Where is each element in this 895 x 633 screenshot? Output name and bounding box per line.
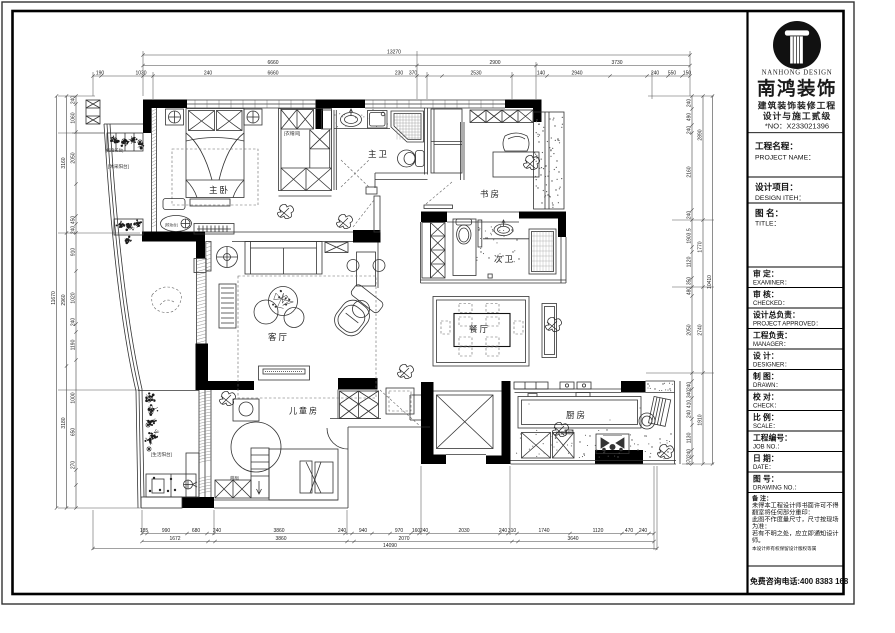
svg-text:日 期：: 日 期： [753,453,779,463]
svg-text:6660: 6660 [267,70,278,76]
svg-text:1190: 1190 [71,339,77,350]
svg-text:2030: 2030 [458,528,469,534]
svg-text:书房: 书房 [480,189,501,199]
svg-text:940: 940 [359,528,368,534]
svg-text:餐厅: 餐厅 [469,324,490,334]
svg-text:2530: 2530 [470,70,481,76]
svg-text:免费咨询电话:400 8383 168: 免费咨询电话:400 8383 168 [750,576,849,586]
svg-text:11670: 11670 [51,291,57,305]
svg-text:2940: 2940 [571,70,582,76]
svg-text:工程编号：: 工程编号： [753,433,792,443]
svg-text:3160: 3160 [61,157,67,168]
svg-text:DATE：: DATE： [753,465,775,471]
svg-text:*NO：X233021396: *NO：X233021396 [765,122,829,131]
svg-text:1120: 1120 [593,528,604,534]
svg-text:SCALE：: SCALE： [753,424,779,430]
svg-text:NANHONG DESIGN: NANHONG DESIGN [762,70,833,77]
svg-text:14090: 14090 [383,543,397,549]
svg-text:JOB NO.：: JOB NO.： [753,445,783,451]
svg-text:[衣帽间]: [衣帽间] [284,130,300,137]
svg-text:13270: 13270 [387,49,401,55]
svg-text:若有不明之处，应立即通知设计: 若有不明之处，应立即通知设计 [752,530,839,538]
svg-text:DRAWING NO.：: DRAWING NO.： [753,486,800,492]
svg-text:PROJECT APPROVED：: PROJECT APPROVED： [753,322,822,328]
svg-text:[梳妆台]: [梳妆台] [165,222,178,227]
svg-text:910: 910 [71,248,77,257]
svg-text:[组合花台]: [组合花台] [106,148,123,153]
svg-text:270: 270 [71,461,77,470]
svg-text:TITLE：: TITLE： [755,221,780,228]
svg-text:1903.5: 1903.5 [687,228,693,244]
svg-text:审 定：: 审 定： [753,269,779,279]
svg-text:制 图：: 制 图： [753,371,779,381]
svg-text:2050: 2050 [687,324,693,335]
svg-text:1000: 1000 [71,392,77,403]
svg-text:客厅: 客厅 [268,332,289,342]
svg-text:1910: 1910 [698,414,704,425]
svg-text:650: 650 [71,428,77,437]
svg-text:1120: 1120 [687,256,693,267]
svg-text:680: 680 [192,528,201,534]
svg-text:240: 240 [687,382,693,391]
svg-text:1130: 1130 [687,432,693,443]
svg-text:240: 240 [687,126,693,135]
svg-text:240: 240 [687,211,693,220]
svg-text:建筑装饰装修工程: 建筑装饰装修工程 [757,100,836,111]
svg-text:240: 240 [71,318,77,327]
svg-text:340: 340 [687,390,693,399]
svg-text:厨房: 厨房 [566,410,587,420]
svg-text:1060: 1060 [71,112,77,123]
svg-text:设计项目：: 设计项目： [755,181,798,192]
svg-text:185: 185 [140,528,149,534]
svg-text:2050: 2050 [71,152,77,163]
svg-text:970: 970 [395,528,404,534]
svg-text:1770: 1770 [698,241,704,252]
svg-text:主卫: 主卫 [368,149,389,159]
svg-text:480: 480 [687,287,693,296]
svg-text:550: 550 [668,70,677,76]
svg-text:6660: 6660 [267,60,278,66]
svg-text:备 注：: 备 注： [751,495,772,503]
svg-text:设 计：: 设 计： [753,351,779,361]
svg-text:工程负责：: 工程负责： [753,330,792,340]
svg-text:为准：: 为准： [752,523,771,531]
svg-text:3180: 3180 [61,417,67,428]
svg-text:2900: 2900 [489,60,500,66]
svg-text:[休采阳台]: [休采阳台] [108,163,129,170]
svg-text:410: 410 [687,400,693,409]
svg-text:1740: 1740 [538,528,549,534]
svg-text:比 例：: 比 例： [753,412,779,422]
svg-text:MANAGER：: MANAGER： [753,342,789,348]
svg-text:校 对：: 校 对： [753,392,779,402]
svg-text:DESIGN ITEH：: DESIGN ITEH： [755,195,805,202]
svg-text:DESIGNER：: DESIGNER： [753,363,790,369]
svg-text:设计与施工贰级: 设计与施工贰级 [763,110,832,121]
svg-text:主卧: 主卧 [209,185,230,195]
svg-text:2890: 2890 [698,129,704,140]
svg-text:2070: 2070 [398,536,409,542]
svg-text:设计总负责：: 设计总负责： [753,310,800,320]
svg-text:2740: 2740 [698,324,704,335]
svg-text:[生活阳台]: [生活阳台] [151,451,172,458]
svg-text:240: 240 [687,449,693,458]
svg-text:370: 370 [409,70,418,76]
svg-text:2960: 2960 [61,294,67,305]
svg-text:翻室将任何部分重印：: 翻室将任何部分重印： [752,509,814,517]
svg-text:次卫: 次卫 [494,254,515,264]
svg-text:1672: 1672 [169,536,180,542]
svg-text:本设计师有权保留设计版权等属: 本设计师有权保留设计版权等属 [752,545,817,552]
svg-text:240: 240 [338,528,347,534]
svg-text:240: 240 [687,410,693,419]
svg-text:350: 350 [687,277,693,286]
svg-text:240: 240 [204,70,213,76]
svg-text:师。: 师。 [752,537,764,545]
svg-text:240: 240 [639,528,648,534]
svg-text:3730: 3730 [611,60,622,66]
svg-text:此图不作度量尺寸，尺寸按现场: 此图不作度量尺寸，尺寸按现场 [752,516,839,524]
svg-text:DRAWN：: DRAWN： [753,383,781,389]
svg-text:EXAMINER：: EXAMINER： [753,281,790,287]
svg-text:审 核：: 审 核： [753,289,779,299]
svg-text:450: 450 [71,216,77,225]
svg-text:未得本工程设计师书面许可不得: 未得本工程设计师书面许可不得 [752,502,839,510]
svg-text:[鞋柜]: [鞋柜] [230,475,239,480]
svg-text:1020: 1020 [71,292,77,303]
svg-text:240: 240 [71,96,77,105]
svg-text:南鸿装饰: 南鸿装饰 [757,78,837,99]
svg-text:CHECKED：: CHECKED： [753,301,788,307]
svg-text:310: 310 [508,528,517,534]
svg-text:CHECK：: CHECK： [753,404,780,410]
svg-text:470: 470 [625,528,634,534]
svg-text:儿童房: 儿童房 [289,406,319,416]
svg-text:3640: 3640 [567,536,578,542]
svg-text:230: 230 [395,70,404,76]
svg-text:工程名程：: 工程名程： [755,140,798,151]
svg-text:140: 140 [537,70,546,76]
svg-text:3860: 3860 [273,528,284,534]
svg-text:990: 990 [162,528,171,534]
svg-text:2160: 2160 [687,166,693,177]
svg-text:240: 240 [499,528,508,534]
svg-text:PROJECT NAME：: PROJECT NAME： [755,155,815,162]
svg-text:3860: 3860 [275,536,286,542]
svg-text:图 名：: 图 名： [755,207,783,218]
svg-text:490: 490 [687,113,693,122]
svg-text:图 号：: 图 号： [753,475,779,484]
svg-text:240: 240 [687,99,693,108]
svg-text:1030: 1030 [135,70,146,76]
svg-text:190: 190 [96,70,105,76]
